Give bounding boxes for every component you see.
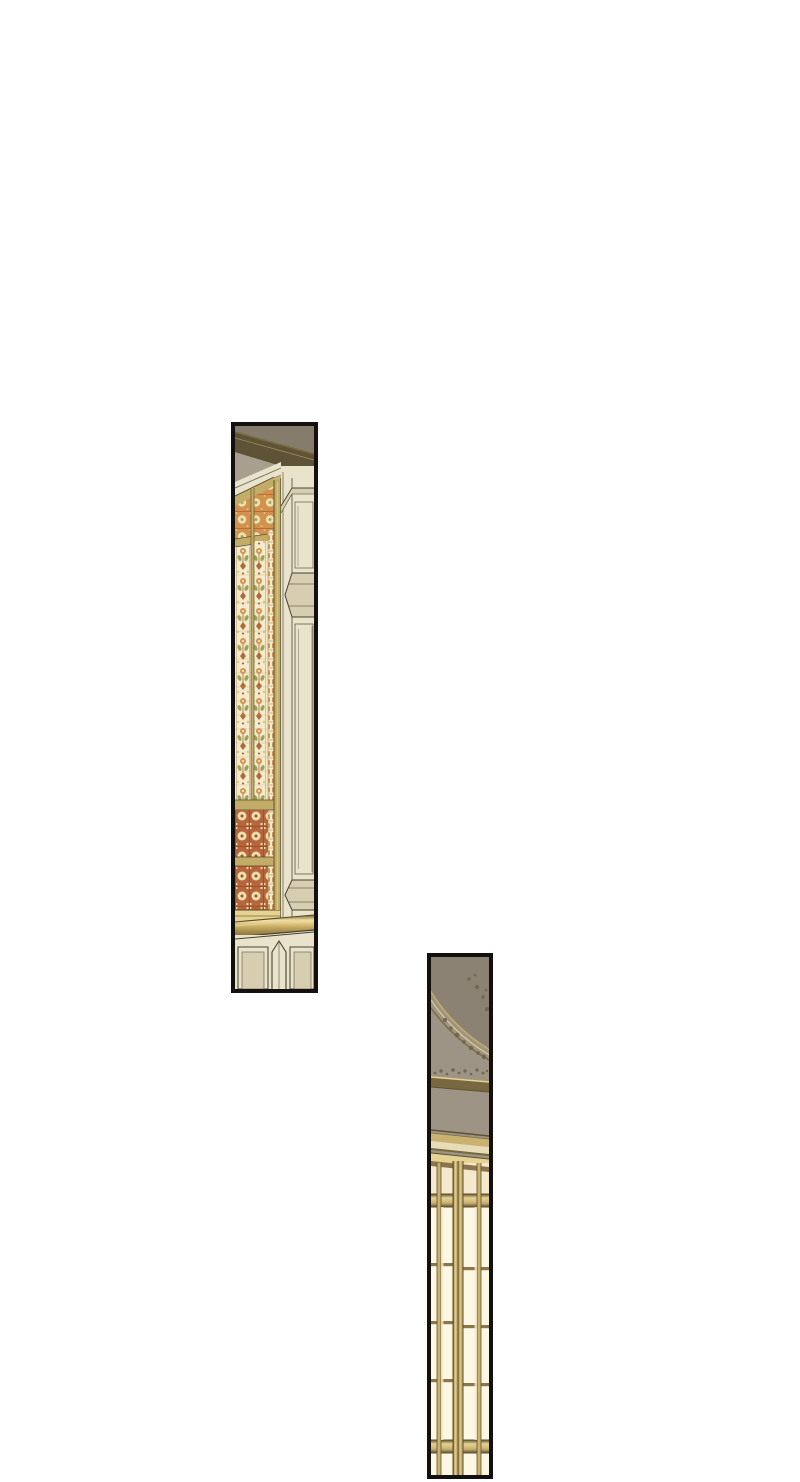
wainscot bbox=[235, 932, 314, 989]
stained-glass-window bbox=[235, 477, 281, 922]
lattice-window-artwork bbox=[431, 957, 489, 1475]
wall-pilaster bbox=[281, 466, 314, 922]
panel-lattice-window bbox=[427, 953, 493, 1479]
lattice-window bbox=[431, 1161, 489, 1475]
comic-page: { "page": { "background": "#ffffff", "wi… bbox=[0, 0, 800, 1482]
stained-glass-artwork bbox=[235, 426, 314, 989]
central-stile bbox=[453, 1161, 463, 1475]
panel-stained-glass bbox=[231, 422, 318, 993]
